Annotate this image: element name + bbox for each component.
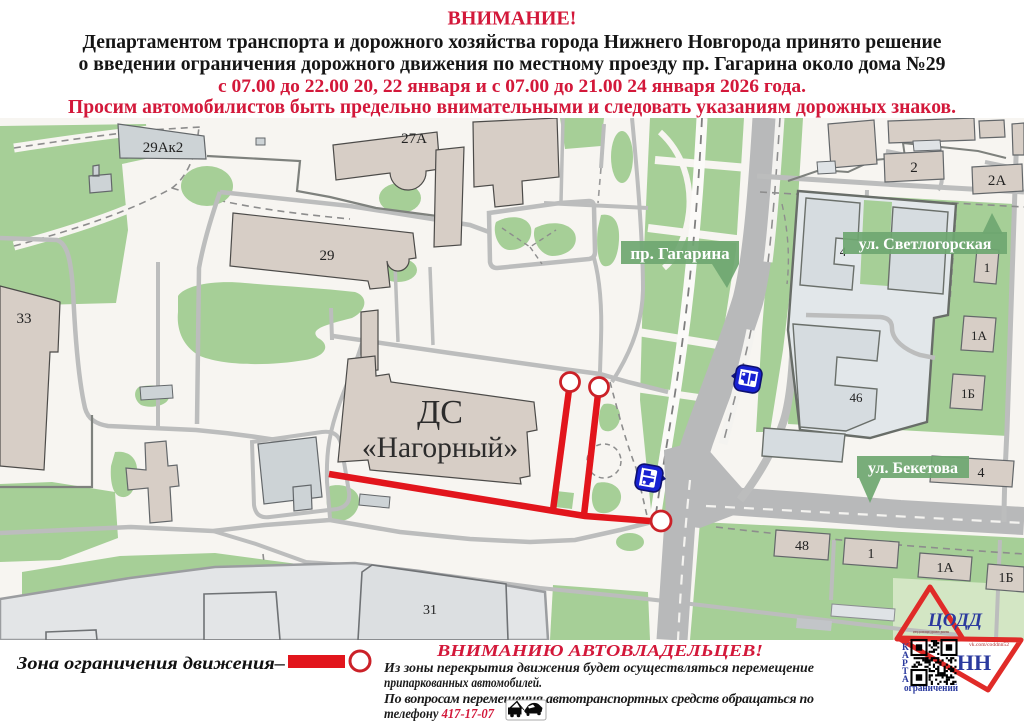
svg-text:По вопросам перемещения автотр: По вопросам перемещения автотранспортных… — [383, 692, 814, 707]
svg-text:27А: 27А — [401, 131, 427, 147]
svg-text:46: 46 — [850, 390, 864, 405]
svg-text:2А: 2А — [988, 173, 1007, 189]
svg-text:1А: 1А — [971, 328, 988, 343]
svg-text:33: 33 — [17, 311, 32, 327]
svg-text:телефону 417-17-07: телефону 417-17-07 — [384, 707, 495, 722]
svg-text:ул. Светлогорская: ул. Светлогорская — [859, 236, 992, 253]
svg-text:1: 1 — [984, 260, 991, 275]
svg-text:центр организации дорожного дв: центр организации дорожного движения — [913, 629, 949, 634]
svg-text:Департаментом транспорта и дор: Департаментом транспорта и дорожного хоз… — [83, 31, 942, 53]
svg-text:пр. Гагарина: пр. Гагарина — [630, 244, 730, 263]
svg-text:31: 31 — [423, 603, 437, 618]
svg-text:1Б: 1Б — [961, 386, 975, 401]
svg-text:vk.com/coddnn52: vk.com/coddnn52 — [969, 643, 1010, 648]
svg-text:Просим автомобилистов быть пре: Просим автомобилистов быть предельно вни… — [68, 96, 956, 118]
svg-text:Зона ограничения движения–: Зона ограничения движения– — [16, 653, 285, 673]
svg-text:Из зоны перекрытия движения бу: Из зоны перекрытия движения будет осущес… — [383, 661, 814, 676]
svg-text:29Ак2: 29Ак2 — [143, 140, 184, 156]
svg-text:НН: НН — [957, 650, 991, 675]
svg-text:29: 29 — [320, 248, 335, 264]
svg-text:1Б: 1Б — [998, 571, 1013, 586]
svg-text:48: 48 — [795, 539, 809, 554]
svg-text:«Нагорный»: «Нагорный» — [362, 432, 518, 464]
svg-text:ВНИМАНИЮ АВТОВЛАДЕЛЬЦЕВ!: ВНИМАНИЮ АВТОВЛАДЕЛЬЦЕВ! — [436, 641, 763, 660]
svg-text:ул. Бекетова: ул. Бекетова — [868, 460, 958, 477]
svg-text:ВНИМАНИЕ!: ВНИМАНИЕ! — [448, 8, 577, 30]
svg-text:о введении ограничения дорожно: о введении ограничения дорожного движени… — [79, 53, 946, 75]
svg-text:1А: 1А — [936, 561, 954, 576]
svg-text:припаркованных автомобилей.: припаркованных автомобилей. — [384, 676, 542, 691]
svg-text:ДС: ДС — [417, 394, 463, 431]
svg-text:ЦОДД: ЦОДД — [927, 610, 983, 631]
svg-text:1: 1 — [868, 547, 875, 562]
svg-text:с 07.00 до 22.00 20, 22 января: с 07.00 до 22.00 20, 22 января и с 07.00… — [218, 76, 806, 97]
svg-text:4: 4 — [978, 466, 985, 481]
svg-text:2: 2 — [910, 160, 918, 176]
